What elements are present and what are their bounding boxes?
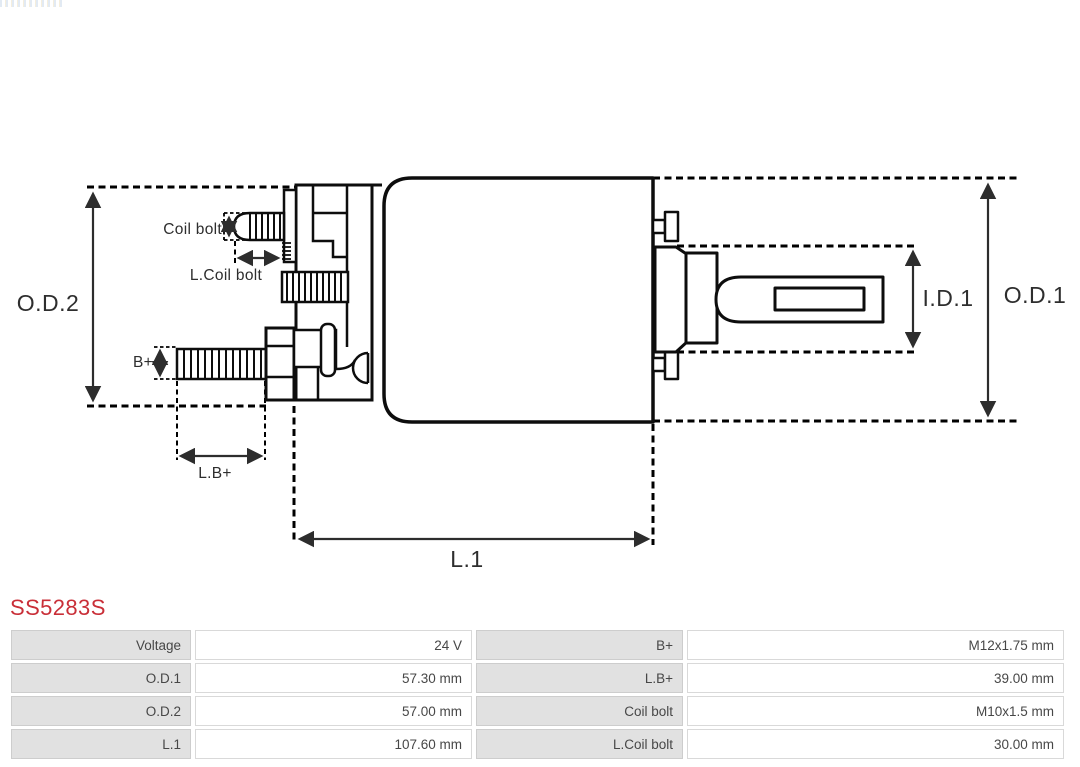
spec-label-cell: Coil bolt — [476, 696, 683, 726]
spec-value-cell: 24 V — [195, 630, 472, 660]
terminal-stud-bottom-head — [665, 350, 678, 379]
spec-label-cell: O.D.1 — [11, 663, 191, 693]
spec-value-cell: 107.60 mm — [195, 729, 472, 759]
solenoid-body-outline — [384, 178, 653, 422]
plunger-face-plate — [686, 253, 717, 343]
spec-label-cell: B+ — [476, 630, 683, 660]
spec-label-cell: Voltage — [11, 630, 191, 660]
terminal-stud-top — [653, 220, 665, 233]
dim-label-b-plus: B+ — [133, 354, 153, 371]
spec-value-cell: 57.30 mm — [195, 663, 472, 693]
terminal-stud-top-head — [665, 212, 678, 241]
plunger-collar — [655, 247, 688, 352]
spec-value-cell: M10x1.5 mm — [687, 696, 1064, 726]
spec-label-cell: L.Coil bolt — [476, 729, 683, 759]
solenoid-technical-drawing: O.D.2 O.D.1 I.D.1 L.1 Coil bolt L.Coil b… — [0, 0, 1080, 592]
b-plus-nut — [266, 328, 294, 400]
dim-label-lcoil-bolt: L.Coil bolt — [190, 267, 263, 284]
spec-label-cell: L.1 — [11, 729, 191, 759]
spec-value-cell: 39.00 mm — [687, 663, 1064, 693]
spec-value-cell: M12x1.75 mm — [687, 630, 1064, 660]
spec-value-cell: 57.00 mm — [195, 696, 472, 726]
terminal-stud-bottom — [653, 358, 665, 371]
dim-label-lb-plus: L.B+ — [198, 465, 232, 482]
dim-label-od1: O.D.1 — [1004, 282, 1067, 308]
coil-bolt-bushing — [282, 272, 348, 302]
part-number-title: SS5283S — [10, 595, 106, 621]
shaft-slot — [775, 288, 864, 310]
plunger-assembly — [653, 212, 883, 379]
dim-label-coil-bolt: Coil bolt — [163, 221, 222, 238]
dim-label-id1: I.D.1 — [922, 285, 973, 311]
spec-label-cell: L.B+ — [476, 663, 683, 693]
product-drawing-page: O.D.2 O.D.1 I.D.1 L.1 Coil bolt L.Coil b… — [0, 0, 1080, 767]
spec-table: Voltage 24 V B+ M12x1.75 mm O.D.1 57.30 … — [11, 630, 1064, 759]
front-cap-assembly — [177, 185, 372, 400]
coil-bolt-stud — [234, 213, 284, 240]
spec-value-cell: 30.00 mm — [687, 729, 1064, 759]
b-plus-washer — [321, 324, 335, 376]
dim-label-od2: O.D.2 — [17, 290, 80, 316]
spec-label-cell: O.D.2 — [11, 696, 191, 726]
dim-label-l1: L.1 — [450, 546, 483, 572]
